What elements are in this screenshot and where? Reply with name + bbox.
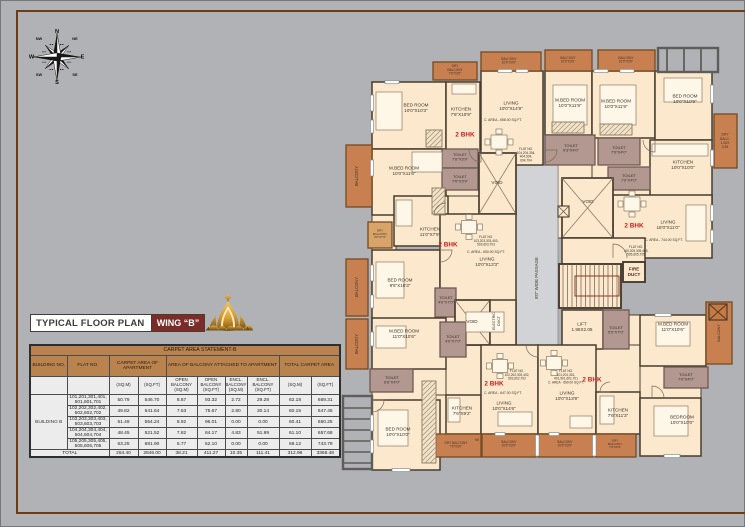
svg-text:2 BHK: 2 BHK xyxy=(438,242,458,249)
svg-text:C. AREA - 658.00 SQ.FT.: C. AREA - 658.00 SQ.FT. xyxy=(484,118,522,122)
svg-text:SW: SW xyxy=(36,72,43,77)
svg-text:4'0"X7'0": 4'0"X7'0" xyxy=(445,338,462,343)
svg-text:505,605,705: 505,605,705 xyxy=(627,253,645,257)
svg-text:C. AREA - 669.00 SQ.FT.: C. AREA - 669.00 SQ.FT. xyxy=(548,381,584,385)
svg-text:7'6"X3'5": 7'6"X3'5" xyxy=(449,71,462,75)
svg-text:VOID: VOID xyxy=(491,180,503,185)
svg-text:DUCT: DUCT xyxy=(628,272,641,277)
svg-text:6'6"X4'0": 6'6"X4'0" xyxy=(384,379,401,384)
svg-text:DUCT: DUCT xyxy=(497,315,501,326)
svg-text:BALCONY: BALCONY xyxy=(717,324,721,342)
svg-text:NE: NE xyxy=(72,36,78,41)
svg-text:3.35: 3.35 xyxy=(722,145,729,149)
svg-text:10'0"X10'3": 10'0"X10'3" xyxy=(404,108,428,113)
svg-text:2 BHK: 2 BHK xyxy=(484,381,504,388)
svg-text:8'0" WIDE PASSAGE: 8'0" WIDE PASSAGE xyxy=(534,257,539,299)
svg-text:BALCONY: BALCONY xyxy=(354,166,359,186)
svg-text:S: S xyxy=(55,80,59,86)
svg-text:C. AREA - 650.00 SQ.FT.: C. AREA - 650.00 SQ.FT. xyxy=(467,250,505,254)
svg-text:2 BHK: 2 BHK xyxy=(455,132,475,139)
svg-text:11'0"X7'9": 11'0"X7'9" xyxy=(420,232,441,237)
svg-text:10'0"X14'9": 10'0"X14'9" xyxy=(499,106,523,111)
svg-text:7'6"X3'9": 7'6"X3'9" xyxy=(452,178,469,183)
svg-text:W: W xyxy=(475,437,479,442)
svg-text:VOID: VOID xyxy=(582,199,594,204)
svg-text:E: E xyxy=(81,54,85,60)
svg-text:10'0"X10'0": 10'0"X10'0" xyxy=(386,432,410,437)
svg-text:10'0"X3'0": 10'0"X3'0" xyxy=(502,61,516,65)
svg-text:11'0"X10'6": 11'0"X10'6" xyxy=(661,327,684,332)
svg-text:503,603,703: 503,603,703 xyxy=(477,243,495,247)
svg-text:7'6"X3'0": 7'6"X3'0" xyxy=(450,445,463,449)
svg-text:10'0"X10'0": 10'0"X10'0" xyxy=(670,420,694,425)
svg-text:7'6"X9'2": 7'6"X9'2" xyxy=(453,411,472,416)
svg-text:ELECTRIC: ELECTRIC xyxy=(492,312,496,330)
svg-text:5'0"X7'0": 5'0"X7'0" xyxy=(608,329,625,334)
svg-text:7'0"X4'0": 7'0"X4'0" xyxy=(678,376,695,381)
svg-text:7'9"X4'0": 7'9"X4'0" xyxy=(621,177,638,182)
svg-text:10'0"X11'6": 10'0"X11'6" xyxy=(392,171,415,176)
svg-text:604,704: 604,704 xyxy=(520,159,532,163)
svg-text:18'0"X11'0": 18'0"X11'0" xyxy=(656,225,679,230)
svg-text:9'6"X10'3": 9'6"X10'3" xyxy=(390,283,411,288)
svg-text:3'0"X7'9": 3'0"X7'9" xyxy=(374,235,386,239)
svg-text:10'0"X10'9": 10'0"X10'9" xyxy=(673,99,697,104)
svg-text:4'0"X7'0": 4'0"X7'0" xyxy=(438,299,455,304)
svg-text:C. AREA - 744.00 SQ.FT.: C. AREA - 744.00 SQ.FT. xyxy=(645,238,683,242)
svg-text:7'6"X10'9": 7'6"X10'9" xyxy=(451,112,472,117)
svg-text:VOID: VOID xyxy=(466,319,478,324)
svg-text:7'6"X3'9": 7'6"X3'9" xyxy=(452,156,469,161)
svg-text:7'6"X2'9": 7'6"X2'9" xyxy=(609,445,621,449)
svg-text:N: N xyxy=(55,29,59,35)
svg-text:7'0"X4'0": 7'0"X4'0" xyxy=(611,149,628,154)
svg-text:C. AREA - 647.00 SQ.FT.: C. AREA - 647.00 SQ.FT. xyxy=(484,391,522,395)
svg-text:SE: SE xyxy=(72,72,78,77)
svg-text:9'3"X4'0": 9'3"X4'0" xyxy=(563,147,580,152)
svg-text:10'0"X14'6": 10'0"X14'6" xyxy=(492,406,516,411)
svg-text:2 BHK: 2 BHK xyxy=(624,223,644,230)
svg-text:7'6"X11'3": 7'6"X11'3" xyxy=(608,413,629,418)
svg-text:10'0"X3'0": 10'0"X3'0" xyxy=(619,60,633,64)
svg-text:BALCONY: BALCONY xyxy=(354,277,359,297)
svg-text:10'0"X10'0": 10'0"X10'0" xyxy=(671,165,695,170)
svg-text:10'0"X3'0": 10'0"X3'0" xyxy=(502,444,516,448)
svg-text:502,602,702: 502,602,702 xyxy=(508,377,526,381)
svg-text:11'0"X10'6": 11'0"X10'6" xyxy=(392,334,415,339)
svg-text:1.95X2.05: 1.95X2.05 xyxy=(572,327,593,332)
svg-text:NW: NW xyxy=(36,36,43,41)
svg-text:10'0"X11'9": 10'0"X11'9" xyxy=(604,104,627,109)
svg-text:10'0"X3'0": 10'0"X3'0" xyxy=(558,444,572,448)
svg-text:10'0"X13'9": 10'0"X13'9" xyxy=(555,396,579,401)
svg-text:BALCONY: BALCONY xyxy=(354,334,359,354)
svg-text:10'0"X11'9": 10'0"X11'9" xyxy=(558,103,581,108)
svg-text:W: W xyxy=(29,54,35,60)
svg-text:10'0"X3'0": 10'0"X3'0" xyxy=(561,60,575,64)
svg-text:10'0"X13'3": 10'0"X13'3" xyxy=(475,262,499,267)
svg-text:2 BHK: 2 BHK xyxy=(582,377,602,384)
